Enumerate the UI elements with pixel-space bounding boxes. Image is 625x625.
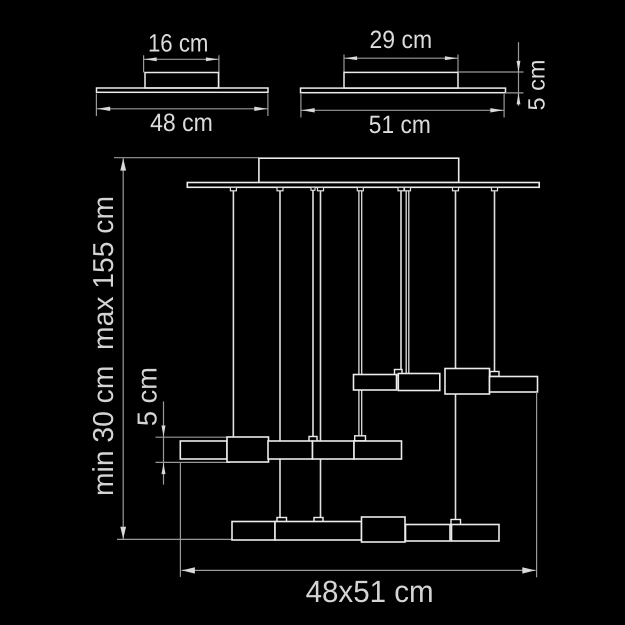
svg-text:48 cm: 48 cm xyxy=(150,109,213,137)
svg-text:48x51 cm: 48x51 cm xyxy=(306,574,434,609)
svg-text:5 cm: 5 cm xyxy=(132,367,163,426)
svg-text:16 cm: 16 cm xyxy=(148,30,209,58)
svg-text:29 cm: 29 cm xyxy=(370,26,433,54)
svg-text:51 cm: 51 cm xyxy=(369,111,431,139)
svg-text:min 30 cm max 155 cm: min 30 cm max 155 cm xyxy=(88,196,120,496)
svg-text:5 cm: 5 cm xyxy=(523,60,549,111)
